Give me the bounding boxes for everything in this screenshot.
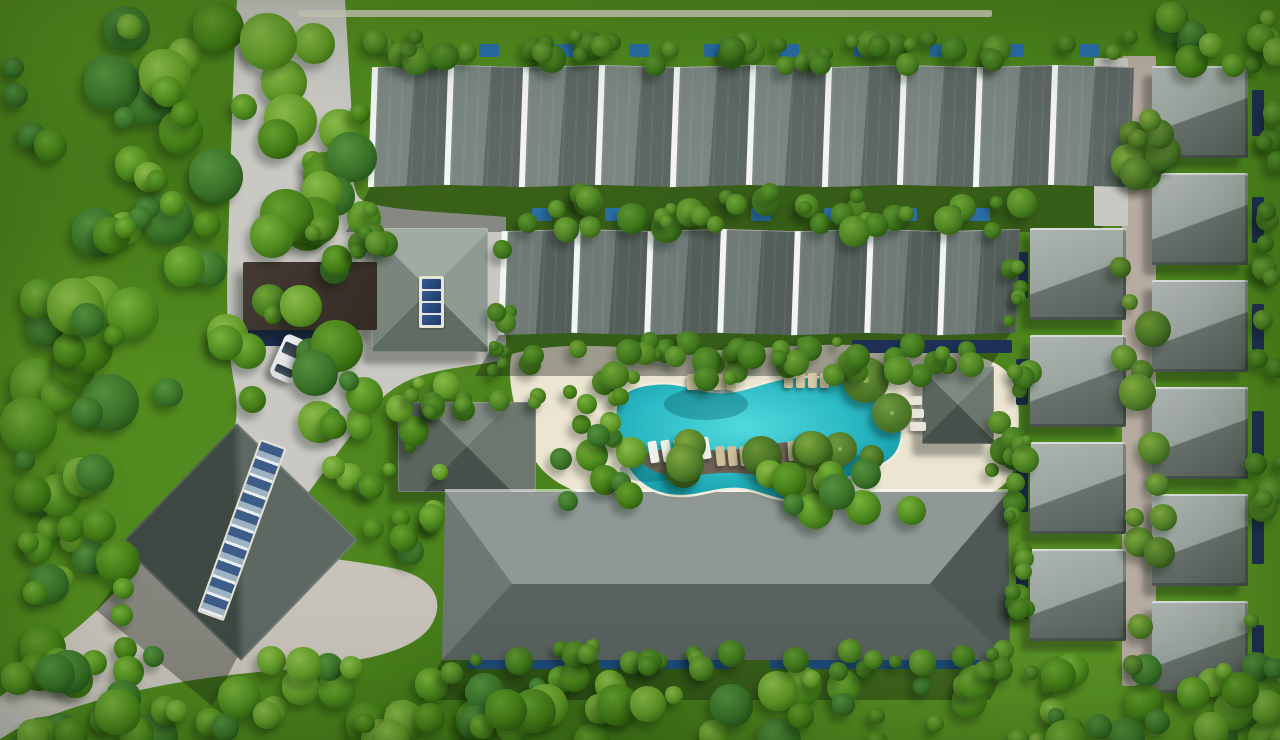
tree (1011, 260, 1025, 274)
tree (1007, 188, 1037, 218)
palm-tree (1122, 294, 1138, 310)
palm-tree (1150, 504, 1177, 531)
tree (208, 325, 243, 360)
tree (1087, 714, 1112, 739)
tree (1263, 269, 1280, 286)
tree (771, 350, 787, 366)
tree (497, 358, 508, 369)
tree (250, 214, 294, 258)
tree (408, 29, 423, 44)
tree (485, 689, 527, 731)
tree (803, 670, 821, 688)
tree (1267, 151, 1280, 173)
tree (710, 684, 753, 727)
tree (441, 662, 463, 684)
tree (617, 203, 648, 234)
tree (845, 344, 870, 369)
tree (986, 648, 999, 661)
tree (612, 388, 629, 405)
tree (350, 103, 370, 123)
tree (194, 211, 221, 238)
tree (294, 23, 335, 64)
tree (720, 36, 746, 62)
tree (455, 396, 472, 413)
tree (587, 424, 610, 447)
tree (788, 703, 814, 729)
tree (212, 714, 239, 740)
tree (359, 474, 384, 499)
tree (1199, 33, 1223, 57)
tree (1012, 294, 1023, 305)
tree (1015, 563, 1032, 580)
tree (489, 341, 499, 351)
tree (868, 35, 890, 57)
tree (1029, 733, 1046, 740)
tree (772, 462, 807, 497)
palm-tree (1146, 473, 1169, 496)
tree (616, 482, 643, 509)
tree (1249, 349, 1268, 368)
tree (959, 352, 984, 377)
tree (57, 516, 83, 542)
tree (869, 708, 885, 724)
tree (36, 654, 75, 693)
tree (355, 713, 375, 733)
tree (383, 463, 396, 476)
tree (1263, 102, 1280, 125)
tree (154, 378, 183, 407)
tree (143, 646, 164, 667)
tree (1156, 2, 1187, 33)
tree (458, 43, 477, 62)
tree (990, 196, 1003, 209)
palm-tree (666, 444, 704, 482)
tree (726, 194, 747, 215)
tree (850, 189, 864, 203)
tree (14, 475, 51, 512)
tree (810, 54, 831, 75)
tree (563, 385, 577, 399)
tree (113, 578, 134, 599)
tree (523, 345, 544, 366)
tree (76, 454, 114, 492)
palm-tree (1125, 508, 1144, 527)
tree (432, 464, 448, 480)
tree (927, 715, 944, 732)
tree (1255, 490, 1273, 508)
tree (111, 604, 133, 626)
tree (1041, 658, 1076, 693)
tree (532, 42, 553, 63)
tree (114, 107, 136, 129)
tree (935, 346, 950, 361)
tree (505, 647, 533, 675)
tree (193, 2, 244, 53)
tree (573, 47, 589, 63)
tree (339, 371, 359, 391)
tree (166, 700, 188, 722)
tree (160, 191, 185, 216)
tree (832, 693, 855, 716)
tree (280, 285, 322, 327)
tree (897, 496, 926, 525)
tree (55, 718, 88, 740)
tree (1216, 663, 1232, 679)
tree (1123, 29, 1138, 44)
tree (832, 337, 842, 347)
tree (913, 677, 931, 695)
tree (327, 132, 377, 182)
tree (904, 38, 917, 51)
tree (638, 656, 658, 676)
tree (423, 404, 438, 419)
tree (839, 216, 870, 247)
tree (363, 518, 384, 539)
tree (783, 647, 809, 673)
tree (934, 206, 963, 235)
tree (665, 346, 686, 367)
tree (487, 303, 506, 322)
tree (1257, 202, 1276, 221)
tree (1, 662, 34, 695)
tree (147, 170, 168, 191)
tree (292, 350, 338, 396)
tree (718, 640, 745, 667)
tree (34, 129, 67, 162)
tree (941, 36, 967, 62)
tree (104, 325, 125, 346)
tree (1007, 364, 1023, 380)
tree (1257, 235, 1274, 252)
tree (884, 356, 913, 385)
tree (240, 13, 297, 70)
tree (558, 491, 578, 511)
tree (723, 371, 737, 385)
tree (772, 37, 787, 52)
tree (952, 645, 975, 668)
tree (189, 149, 243, 203)
tree (1003, 315, 1015, 327)
tree (15, 451, 35, 471)
tree (413, 377, 425, 389)
tree (909, 649, 936, 676)
tree (239, 386, 266, 413)
tree (665, 686, 683, 704)
tree (71, 303, 105, 337)
tree (574, 724, 610, 740)
tree (95, 689, 141, 735)
tree (83, 509, 116, 542)
tree (1244, 613, 1259, 628)
tree (1005, 584, 1021, 600)
tree (851, 459, 881, 489)
tree (579, 216, 601, 238)
palm-tree (1138, 432, 1170, 464)
tree (431, 42, 459, 70)
tree (1008, 598, 1030, 620)
tree (1264, 658, 1280, 679)
palm-tree (1139, 109, 1161, 131)
palm-tree (1110, 257, 1131, 278)
palm-tree (1123, 655, 1143, 675)
tree (644, 54, 666, 76)
tree (320, 412, 347, 439)
tree (363, 29, 388, 54)
tree (1106, 45, 1121, 60)
tree (53, 334, 86, 367)
tree (415, 703, 445, 733)
palm-tree (1128, 129, 1148, 149)
tree (322, 245, 352, 275)
tree (1022, 435, 1032, 445)
tree (1266, 358, 1280, 378)
tree (231, 94, 257, 120)
tree (1058, 35, 1076, 53)
tree (578, 644, 598, 664)
tree (689, 656, 714, 681)
tree (0, 397, 57, 454)
tree (984, 222, 1001, 239)
tree (363, 202, 378, 217)
tree (1222, 54, 1245, 77)
tree (569, 340, 587, 358)
tree (760, 183, 780, 203)
palm-tree (1144, 537, 1175, 568)
tree (305, 225, 321, 241)
tree (528, 396, 541, 409)
tree (662, 41, 679, 58)
tree (470, 654, 482, 666)
tree (419, 504, 445, 530)
tree (117, 14, 142, 39)
tree (975, 660, 995, 680)
tree (1005, 510, 1016, 521)
tree (489, 390, 510, 411)
palm-tree (795, 431, 829, 465)
tree (96, 539, 140, 583)
tree (286, 647, 322, 683)
tree (846, 35, 859, 48)
tree (554, 217, 579, 242)
tree (340, 656, 363, 679)
tree (576, 186, 601, 211)
tree (322, 456, 345, 479)
tree (115, 217, 136, 238)
tree (707, 216, 724, 233)
tree (823, 364, 845, 386)
tree (23, 581, 47, 605)
tree (1256, 134, 1273, 151)
tree (1274, 455, 1280, 469)
tree (84, 55, 140, 111)
tree (1263, 38, 1280, 66)
tree (783, 494, 804, 515)
tree (350, 243, 366, 259)
tree (660, 215, 673, 228)
tree (1177, 677, 1210, 710)
tree (829, 662, 848, 681)
tree (548, 200, 566, 218)
palm-tree (1120, 157, 1153, 190)
vegetation-layer (0, 0, 1280, 740)
tree (72, 397, 103, 428)
tree (493, 240, 512, 259)
tree (390, 524, 418, 552)
tree (253, 701, 281, 729)
tree (819, 474, 855, 510)
tree (570, 30, 582, 42)
tree (776, 56, 795, 75)
tree (896, 53, 919, 76)
tree (899, 206, 914, 221)
tree (1253, 310, 1273, 330)
tree (4, 83, 28, 107)
tree (3, 57, 24, 78)
tree (920, 30, 937, 47)
tree (1012, 446, 1039, 473)
palm-tree (1128, 614, 1153, 639)
tree (985, 463, 999, 477)
tree (1145, 709, 1170, 734)
tree (838, 639, 862, 663)
tree (577, 394, 597, 414)
tree (1006, 473, 1025, 492)
tree (164, 246, 205, 287)
tree (18, 532, 39, 553)
tree (799, 201, 812, 214)
palm-tree (1119, 374, 1156, 411)
tree (365, 231, 389, 255)
tree (518, 213, 538, 233)
tree (694, 366, 719, 391)
tree (1244, 55, 1262, 73)
tree (348, 415, 373, 440)
aerial-resort-render (0, 0, 1280, 740)
tree (864, 650, 883, 669)
tree (889, 655, 902, 668)
tree (867, 731, 888, 740)
tree (738, 341, 766, 369)
tree (171, 101, 198, 128)
tree (258, 119, 298, 159)
tree (630, 686, 666, 722)
tree (1245, 453, 1267, 475)
tree (601, 361, 629, 389)
palm-tree (1135, 311, 1171, 347)
tree (257, 646, 286, 675)
tree (550, 448, 572, 470)
tree (1008, 729, 1029, 740)
tree (404, 388, 419, 403)
tree (591, 35, 613, 57)
tree (982, 49, 1004, 71)
tree (1024, 665, 1039, 680)
